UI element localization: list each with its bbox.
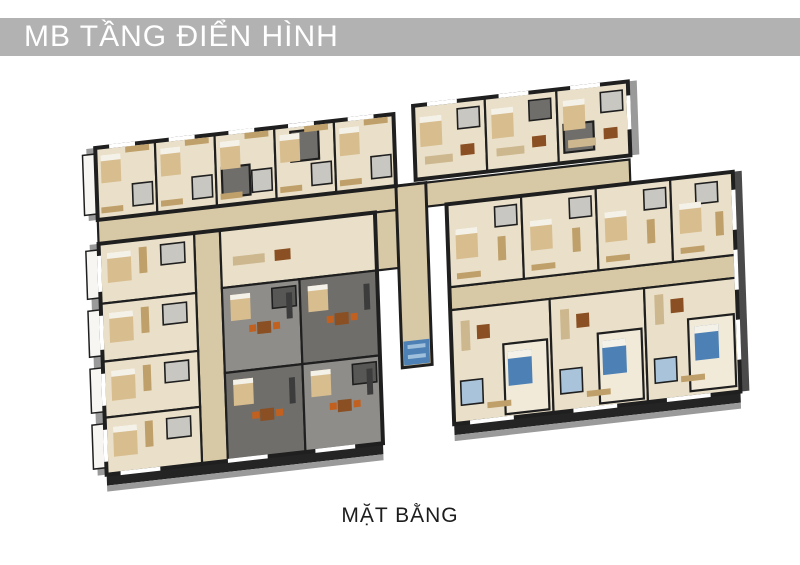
floor-plan bbox=[0, 56, 800, 506]
caption: MẶT BẰNG bbox=[0, 504, 800, 528]
header-bar: MB TẦNG ĐIỂN HÌNH bbox=[0, 18, 800, 56]
page-title: MB TẦNG ĐIỂN HÌNH bbox=[0, 20, 339, 54]
plan-group bbox=[82, 67, 750, 493]
